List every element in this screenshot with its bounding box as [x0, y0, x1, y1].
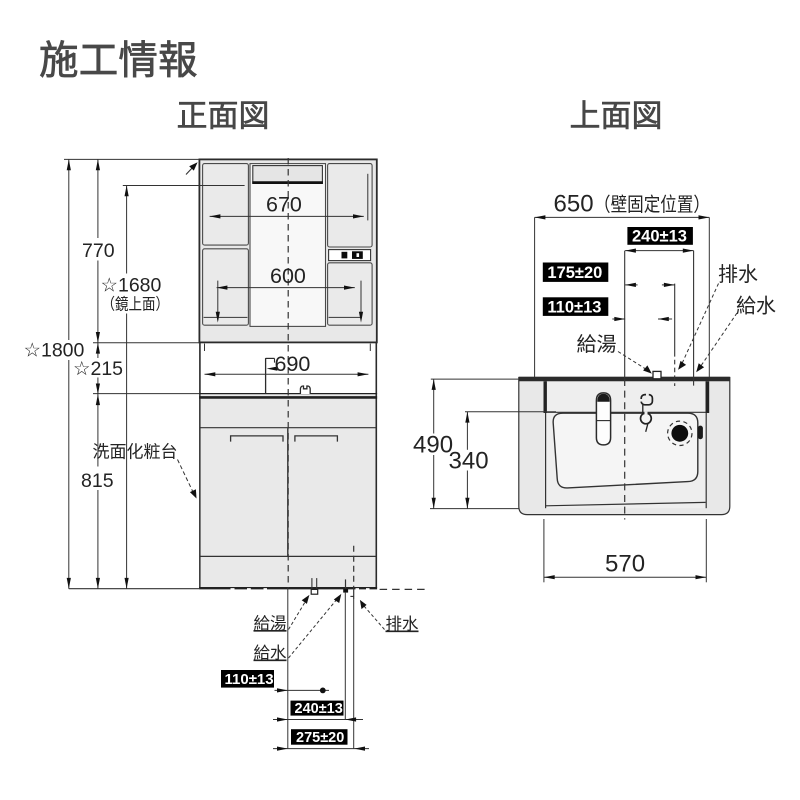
svg-text:110±13: 110±13 [225, 671, 274, 688]
svg-text:☆215: ☆215 [73, 358, 123, 380]
svg-text:（壁固定位置）: （壁固定位置） [594, 194, 710, 216]
svg-text:690: 690 [275, 352, 311, 376]
svg-text:670: 670 [266, 192, 302, 216]
svg-text:240±13: 240±13 [632, 227, 687, 245]
svg-text:施工情報: 施工情報 [39, 39, 198, 83]
svg-text:490: 490 [413, 432, 453, 459]
svg-text:815: 815 [81, 470, 114, 492]
svg-text:排水: 排水 [386, 615, 420, 634]
svg-text:洗面化粧台: 洗面化粧台 [93, 443, 178, 462]
svg-text:240±13: 240±13 [295, 701, 343, 717]
svg-text:570: 570 [605, 551, 645, 578]
svg-text:600: 600 [270, 264, 306, 288]
svg-text:給水: 給水 [736, 295, 776, 318]
svg-text:上面図: 上面図 [570, 99, 663, 134]
svg-text:正面図: 正面図 [177, 99, 270, 134]
svg-text:給湯: 給湯 [254, 614, 287, 633]
svg-text:110±13: 110±13 [547, 298, 601, 316]
svg-text:770: 770 [82, 240, 115, 262]
svg-text:275±20: 275±20 [296, 730, 344, 746]
svg-text:340: 340 [449, 447, 489, 474]
svg-text:650: 650 [554, 191, 594, 218]
svg-text:排水: 排水 [718, 263, 758, 286]
svg-text:給水: 給水 [254, 644, 288, 663]
svg-text:175±20: 175±20 [547, 264, 602, 282]
svg-text:給湯: 給湯 [577, 333, 617, 356]
svg-text:☆1680: ☆1680 [101, 275, 162, 297]
svg-text:（鏡上面）: （鏡上面） [102, 294, 170, 313]
